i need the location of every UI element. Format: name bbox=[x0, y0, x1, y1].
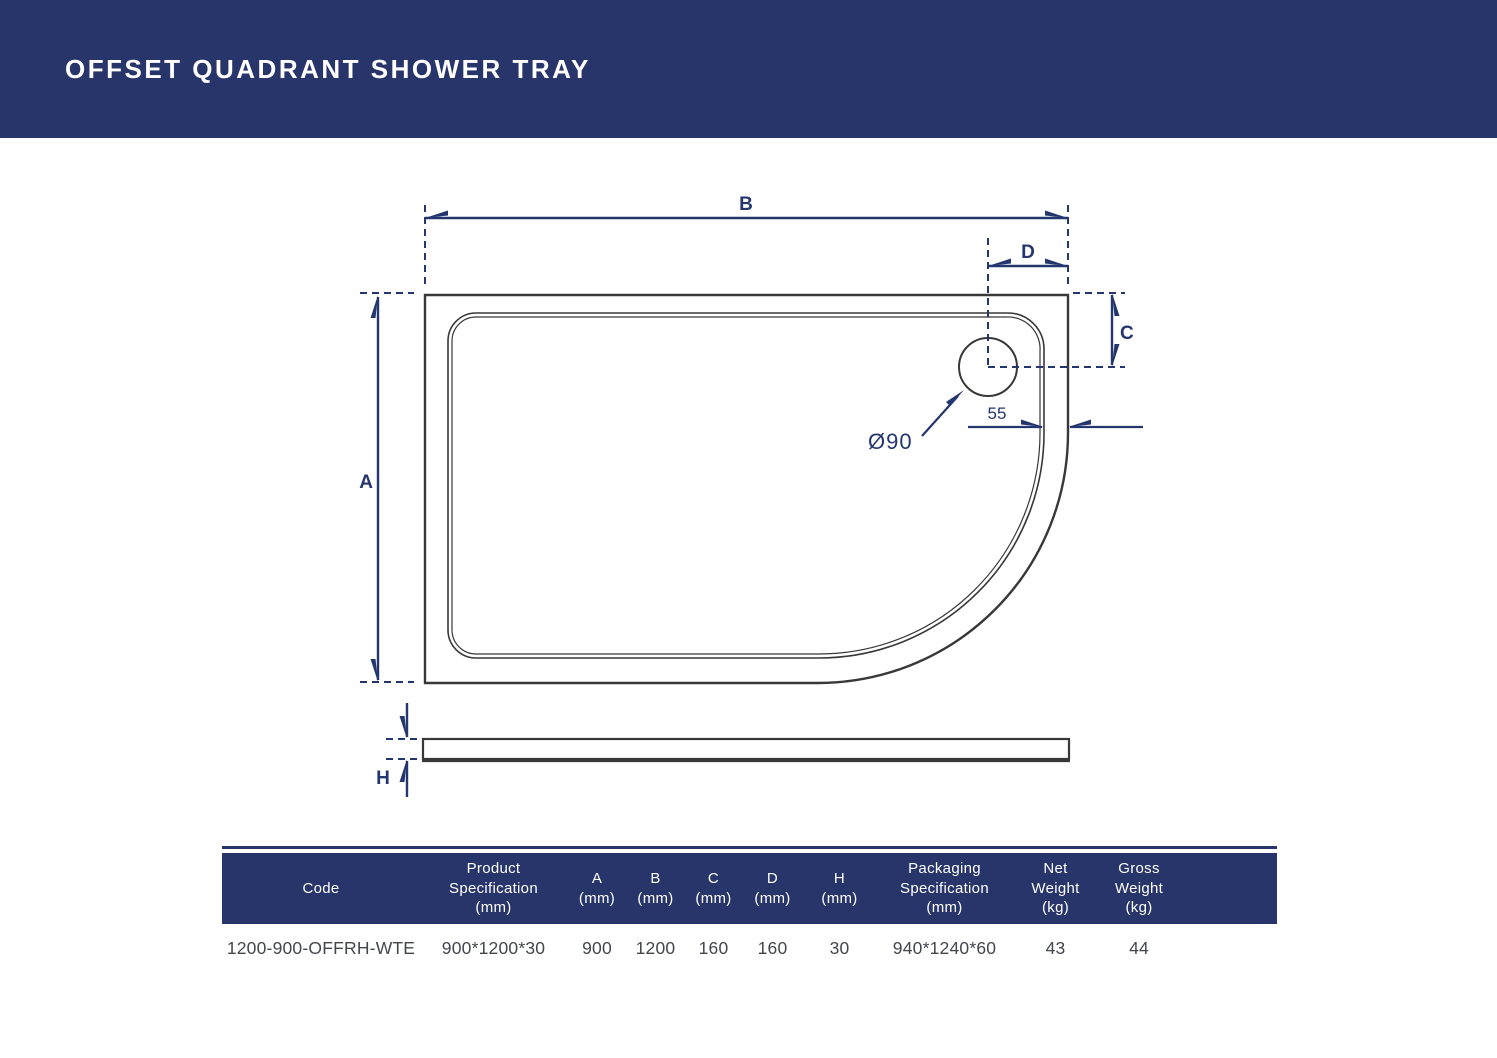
specification-section: Code Product Specification (mm) A (mm) B… bbox=[222, 846, 1277, 967]
col-header-text: (mm) bbox=[804, 889, 875, 909]
tray-side-profile bbox=[422, 739, 1070, 761]
specification-table: Code Product Specification (mm) A (mm) B… bbox=[222, 853, 1277, 967]
dimension-h: H bbox=[376, 703, 407, 797]
dim-d-label: D bbox=[1021, 242, 1035, 263]
col-header-h: H (mm) bbox=[802, 853, 877, 924]
col-header-text: D bbox=[745, 869, 800, 889]
cell-net-weight: 43 bbox=[1012, 924, 1099, 967]
col-header-spacer bbox=[1179, 853, 1277, 924]
col-header-text: B bbox=[629, 869, 682, 889]
col-header-a: A (mm) bbox=[567, 853, 627, 924]
cell-product-spec: 900*1200*30 bbox=[420, 924, 567, 967]
cell-h: 30 bbox=[802, 924, 877, 967]
col-header-code: Code bbox=[222, 853, 420, 924]
tray-plan-view bbox=[425, 295, 1068, 683]
cell-c: 160 bbox=[684, 924, 743, 967]
col-header-text: (mm) bbox=[879, 898, 1010, 918]
col-header-d: D (mm) bbox=[743, 853, 802, 924]
col-header-text: H bbox=[804, 869, 875, 889]
dimension-a: A bbox=[359, 295, 378, 682]
dim-b-label: B bbox=[739, 194, 753, 215]
cell-a: 900 bbox=[567, 924, 627, 967]
col-header-text: Weight bbox=[1014, 879, 1097, 899]
dim-a-label: A bbox=[359, 472, 373, 493]
dim-h-label: H bbox=[376, 768, 390, 789]
table-top-rule bbox=[222, 846, 1277, 849]
dim-55-arrow-left bbox=[1068, 420, 1091, 428]
cell-d: 160 bbox=[743, 924, 802, 967]
table-header-row: Code Product Specification (mm) A (mm) B… bbox=[222, 853, 1277, 924]
dim-55-label: 55 bbox=[988, 404, 1007, 423]
tray-inner-rim-inner bbox=[452, 317, 1040, 654]
col-header-text: A bbox=[569, 869, 625, 889]
col-header-text: (mm) bbox=[569, 889, 625, 909]
col-header-text: Weight bbox=[1101, 879, 1177, 899]
cell-b: 1200 bbox=[627, 924, 684, 967]
tray-inner-rim-outer bbox=[448, 313, 1044, 658]
col-header-c: C (mm) bbox=[684, 853, 743, 924]
dim-c-label: C bbox=[1120, 323, 1134, 344]
col-header-packaging-spec: Packaging Specification (mm) bbox=[877, 853, 1012, 924]
drain-diameter-label: Ø90 bbox=[868, 429, 913, 454]
col-header-text: (mm) bbox=[422, 898, 565, 918]
col-header-net-weight: Net Weight (kg) bbox=[1012, 853, 1099, 924]
extension-lines bbox=[360, 205, 1125, 759]
drain-leader-arrow bbox=[946, 390, 964, 406]
col-header-product-spec: Product Specification (mm) bbox=[420, 853, 567, 924]
col-header-text: Code bbox=[224, 879, 418, 899]
col-header-text: (mm) bbox=[629, 889, 682, 909]
dimension-drain-offset: 55 bbox=[968, 404, 1143, 427]
dimension-c: C bbox=[1112, 293, 1134, 367]
col-header-text: (kg) bbox=[1101, 898, 1177, 918]
cell-gross-weight: 44 bbox=[1099, 924, 1179, 967]
profile-outline bbox=[423, 739, 1069, 759]
cell-packaging-spec: 940*1240*60 bbox=[877, 924, 1012, 967]
col-header-text: Product bbox=[422, 859, 565, 879]
cell-code: 1200-900-OFFRH-WTE bbox=[222, 924, 420, 967]
dimension-d: D bbox=[988, 242, 1068, 266]
dimension-b: B bbox=[425, 194, 1068, 218]
drain-callout: Ø90 bbox=[868, 390, 964, 454]
col-header-text: Net bbox=[1014, 859, 1097, 879]
col-header-text: Gross bbox=[1101, 859, 1177, 879]
col-header-text: Specification bbox=[879, 879, 1010, 899]
spec-sheet-page: OFFSET QUADRANT SHOWER TRAY bbox=[0, 0, 1497, 1058]
col-header-text: (mm) bbox=[745, 889, 800, 909]
col-header-text: (kg) bbox=[1014, 898, 1097, 918]
col-header-gross-weight: Gross Weight (kg) bbox=[1099, 853, 1179, 924]
col-header-b: B (mm) bbox=[627, 853, 684, 924]
col-header-text: Specification bbox=[422, 879, 565, 899]
table-row: 1200-900-OFFRH-WTE 900*1200*30 900 1200 … bbox=[222, 924, 1277, 967]
col-header-text: (mm) bbox=[686, 889, 741, 909]
col-header-text: C bbox=[686, 869, 741, 889]
cell-spacer bbox=[1179, 924, 1277, 967]
col-header-text: Packaging bbox=[879, 859, 1010, 879]
